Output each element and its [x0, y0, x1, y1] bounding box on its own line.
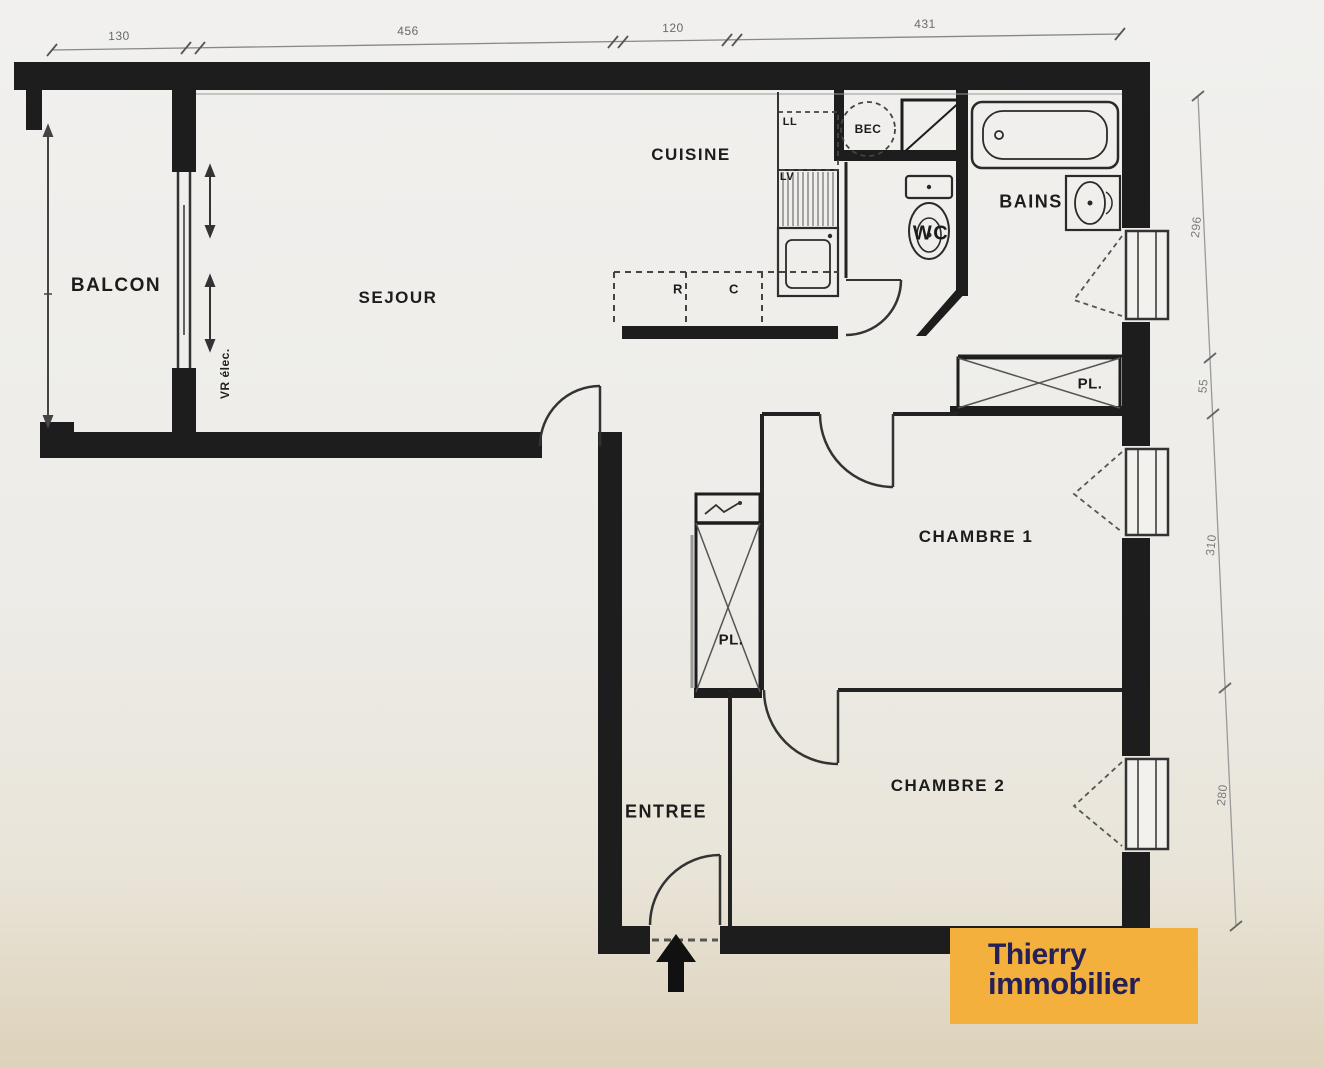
- balcony-railing: [44, 126, 52, 426]
- door-sejour: [540, 386, 600, 446]
- logo-text-line2: immobilier: [988, 968, 1198, 1001]
- door-wc: [846, 280, 901, 335]
- dim-top-431: 431: [914, 17, 936, 31]
- floorplan-page: BALCON SEJOUR CUISINE WC BAINS CHAMBRE 1…: [0, 0, 1324, 1067]
- window-casement-arcs: [1074, 236, 1122, 846]
- dim-top-120: 120: [662, 21, 684, 35]
- dim-right-310: 310: [1203, 534, 1219, 557]
- window-chambre1: [1126, 449, 1168, 535]
- doors: [540, 280, 901, 925]
- dim-right-280: 280: [1214, 784, 1230, 807]
- room-label-cuisine: CUISINE: [651, 145, 730, 165]
- kitchen-dashed-units: [614, 272, 838, 326]
- appliance-label-ll: LL: [783, 116, 797, 128]
- room-label-balcon: BALCON: [71, 275, 161, 297]
- wall-sejour-bottom: [40, 432, 542, 458]
- washbasin: [1066, 176, 1120, 230]
- appliance-label-lv: LV: [780, 171, 794, 183]
- walls: [14, 62, 1150, 954]
- wall-right-2: [1122, 322, 1150, 446]
- wall-top: [14, 62, 1150, 90]
- dim-top-456: 456: [397, 24, 419, 38]
- window-bains: [1126, 231, 1168, 319]
- wall-right-3: [1122, 538, 1150, 756]
- dim-right-55: 55: [1195, 378, 1210, 394]
- door-chambre1: [820, 414, 893, 487]
- wall-entree-west: [598, 432, 622, 954]
- wall-divider-top: [172, 90, 196, 172]
- room-label-bains: BAINS: [999, 192, 1063, 213]
- window-chambre2: [1126, 759, 1168, 849]
- toilet: [906, 176, 952, 259]
- bathtub: [972, 102, 1118, 168]
- wall-divider-bottom: [172, 368, 196, 458]
- wall-hall-north: [622, 326, 838, 339]
- closet-label-pl1: PL.: [1078, 376, 1103, 393]
- sliding-door-arrows: [206, 166, 214, 350]
- appliance-label-c: C: [729, 282, 739, 297]
- wall-bottom-left: [598, 926, 650, 954]
- door-entrance: [650, 855, 720, 925]
- door-chambre2: [764, 690, 838, 764]
- technical-shaft: [902, 100, 962, 154]
- balcony-window: [178, 172, 190, 368]
- dimension-line-top: [47, 28, 1125, 56]
- appliance-label-bec: BEC: [855, 122, 882, 136]
- agency-logo: Thierry immobilier: [950, 928, 1198, 1024]
- entrance-arrow: [656, 934, 696, 992]
- room-label-sejour: SEJOUR: [359, 288, 438, 308]
- closet-label-pl2: PL.: [719, 632, 744, 649]
- kitchen-sink: [778, 228, 838, 296]
- room-label-wc: WC: [913, 223, 949, 246]
- dim-right-296: 296: [1188, 216, 1204, 239]
- room-label-entree: ENTREE: [625, 802, 707, 823]
- shutter-label-vr-elec: VR élec.: [218, 348, 232, 399]
- dim-top-130: 130: [108, 29, 130, 43]
- appliance-label-r: R: [673, 282, 683, 297]
- room-label-chambre1: CHAMBRE 1: [919, 527, 1034, 547]
- room-label-chambre2: CHAMBRE 2: [891, 776, 1006, 796]
- wall-wc-chamfer: [916, 290, 968, 336]
- wall-balcony-post: [26, 90, 42, 130]
- wall-right-1: [1122, 62, 1150, 228]
- closet-hall: [692, 494, 760, 694]
